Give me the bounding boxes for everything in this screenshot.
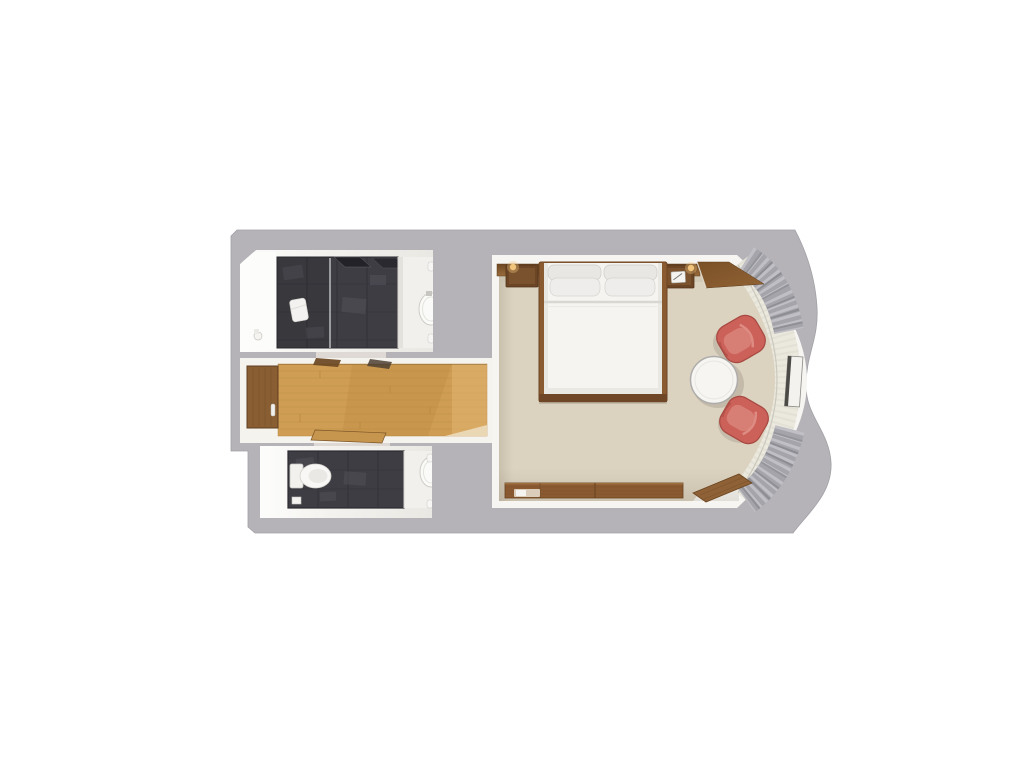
round-table bbox=[691, 357, 738, 404]
floor-plan-svg bbox=[0, 0, 1024, 768]
hallway bbox=[240, 358, 497, 443]
notepad bbox=[671, 271, 686, 283]
bedroom bbox=[492, 255, 807, 508]
dresser bbox=[505, 483, 683, 498]
towel bbox=[289, 298, 309, 322]
bathroom-top bbox=[240, 250, 443, 352]
bathroom-bottom bbox=[260, 446, 442, 518]
floor-highlight bbox=[452, 364, 487, 436]
bed bbox=[539, 262, 667, 403]
nightstand-right bbox=[663, 262, 697, 288]
toilet bbox=[290, 464, 331, 488]
faucet bbox=[426, 291, 432, 296]
carpet-shadow-left bbox=[499, 264, 513, 501]
nightstand-left bbox=[506, 261, 538, 287]
entry-door bbox=[247, 366, 278, 428]
door-handle bbox=[271, 404, 275, 416]
floor-plan-image bbox=[0, 0, 1024, 768]
window-frame bbox=[785, 356, 803, 407]
scale bbox=[292, 497, 301, 504]
footboard bbox=[539, 394, 667, 402]
